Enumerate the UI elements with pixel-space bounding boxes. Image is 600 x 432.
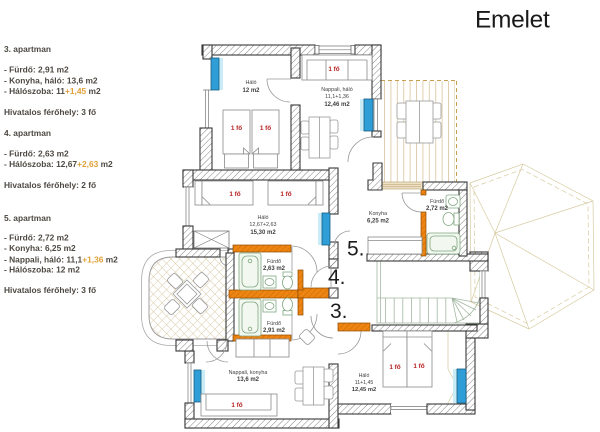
- svg-text:Háló: Háló: [245, 80, 256, 86]
- svg-text:Emelet: Emelet: [475, 7, 550, 34]
- svg-text:- Fürdő: 2,63 m2: - Fürdő: 2,63 m2: [4, 149, 69, 159]
- svg-text:1 fő: 1 fő: [280, 191, 291, 198]
- svg-text:- Fürdő: 2,72 m2: - Fürdő: 2,72 m2: [4, 233, 69, 243]
- svg-text:12,45 m2: 12,45 m2: [352, 387, 377, 393]
- svg-text:- Konyha: 6,25 m2: - Konyha: 6,25 m2: [4, 243, 76, 253]
- svg-text:- Hálószoba: 11+1,45 m2: - Hálószoba: 11+1,45 m2: [4, 86, 101, 96]
- svg-text:1 fő: 1 fő: [229, 191, 240, 198]
- svg-text:11+1,45: 11+1,45: [355, 380, 374, 386]
- svg-text:Fürdő: Fürdő: [267, 321, 281, 327]
- svg-text:3.: 3.: [330, 300, 348, 323]
- svg-text:1 fő: 1 fő: [413, 363, 424, 370]
- svg-text:4.: 4.: [328, 266, 346, 289]
- svg-text:Hivatalos férőhely: 3 fő: Hivatalos férőhely: 3 fő: [4, 285, 96, 295]
- svg-text:12,67+2,63: 12,67+2,63: [249, 222, 276, 228]
- svg-text:- Fürdő: 2,91 m2: - Fürdő: 2,91 m2: [4, 65, 69, 75]
- svg-text:1 fő: 1 fő: [260, 125, 271, 132]
- svg-text:1 fő: 1 fő: [328, 66, 339, 73]
- svg-text:Hivatalos férőhely: 2 fő: Hivatalos férőhely: 2 fő: [4, 180, 96, 190]
- svg-text:- Hálószoba: 12 m2: - Hálószoba: 12 m2: [4, 265, 80, 275]
- svg-text:Hivatalos férőhely: 3 fő: Hivatalos férőhely: 3 fő: [4, 107, 96, 117]
- svg-text:2,63 m2: 2,63 m2: [263, 266, 286, 272]
- svg-text:- Nappali, háló: 11,1+1,36 m2: - Nappali, háló: 11,1+1,36 m2: [4, 255, 118, 265]
- svg-text:12,46 m2: 12,46 m2: [324, 102, 350, 108]
- svg-text:Konyha: Konyha: [369, 211, 387, 217]
- svg-text:Háló: Háló: [257, 215, 268, 221]
- svg-text:11,1+1,36: 11,1+1,36: [325, 94, 349, 100]
- svg-text:- Konyha, háló: 13,6 m2: - Konyha, háló: 13,6 m2: [4, 76, 98, 86]
- svg-text:12 m2: 12 m2: [242, 88, 260, 94]
- svg-text:Nappali, háló: Nappali, háló: [321, 87, 352, 93]
- svg-text:15,30 m2: 15,30 m2: [250, 230, 276, 236]
- svg-text:3. apartman: 3. apartman: [4, 44, 51, 54]
- svg-text:2,91 m2: 2,91 m2: [263, 328, 286, 334]
- svg-text:Nappali, konyha: Nappali, konyha: [229, 370, 268, 376]
- svg-text:Fürdő: Fürdő: [430, 199, 444, 205]
- svg-text:5.: 5.: [347, 238, 365, 261]
- svg-text:5. apartman: 5. apartman: [4, 213, 51, 223]
- svg-text:2,72 m2: 2,72 m2: [426, 206, 449, 212]
- svg-text:Fürdő: Fürdő: [267, 259, 281, 265]
- svg-text:- Hálószoba: 12,67+2,63 m2: - Hálószoba: 12,67+2,63 m2: [4, 159, 113, 169]
- svg-text:1 fő: 1 fő: [389, 364, 400, 371]
- svg-text:6,25 m2: 6,25 m2: [367, 219, 390, 225]
- svg-text:1 fő: 1 fő: [231, 125, 242, 132]
- svg-text:Háló: Háló: [359, 373, 370, 379]
- svg-text:13,6 m2: 13,6 m2: [237, 377, 260, 383]
- svg-text:4. apartman: 4. apartman: [4, 128, 51, 138]
- svg-text:1 fő: 1 fő: [231, 402, 242, 409]
